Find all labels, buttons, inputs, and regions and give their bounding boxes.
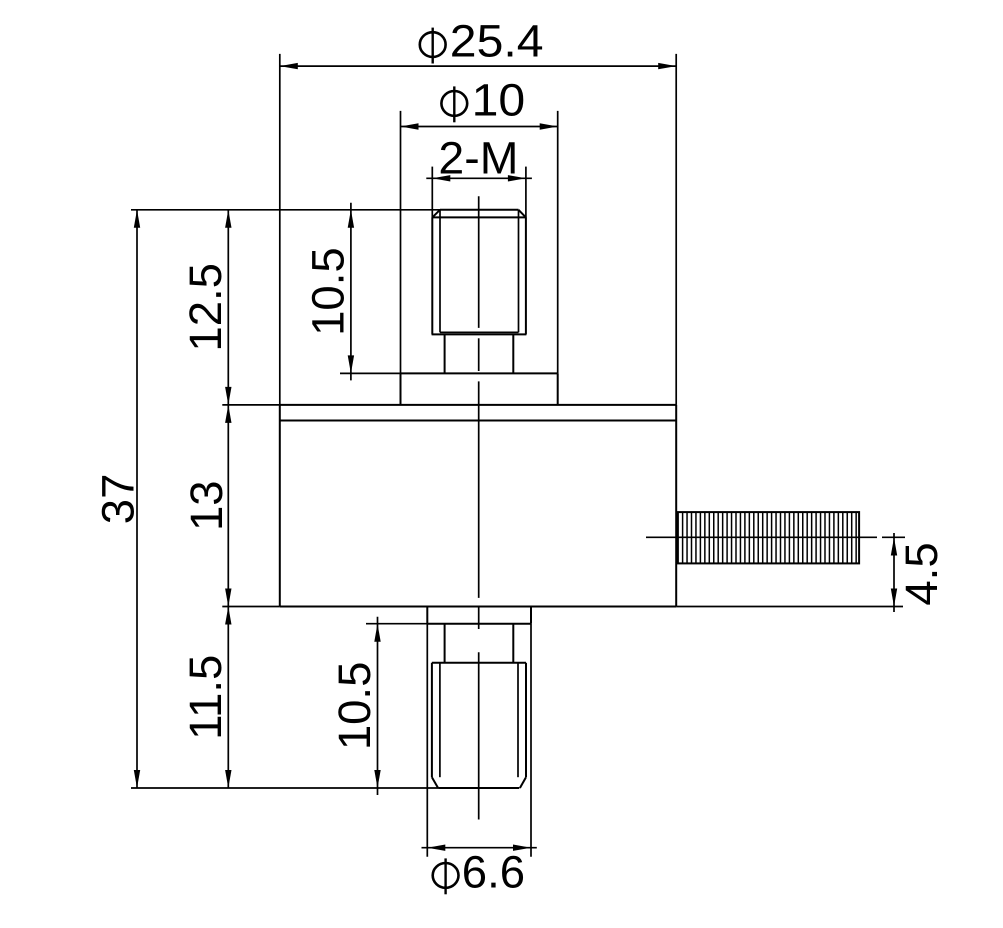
svg-text:6.6: 6.6 bbox=[462, 847, 525, 898]
svg-text:37: 37 bbox=[93, 474, 144, 525]
svg-text:10.5: 10.5 bbox=[329, 662, 380, 751]
svg-text:25.4: 25.4 bbox=[450, 16, 544, 67]
svg-text:10.5: 10.5 bbox=[302, 247, 353, 336]
svg-text:12.5: 12.5 bbox=[180, 263, 231, 352]
svg-text:10: 10 bbox=[472, 75, 526, 126]
svg-text:13: 13 bbox=[181, 480, 232, 531]
svg-text:2-M: 2-M bbox=[438, 132, 518, 183]
svg-text:11.5: 11.5 bbox=[180, 655, 231, 740]
svg-text:4.5: 4.5 bbox=[896, 542, 947, 605]
